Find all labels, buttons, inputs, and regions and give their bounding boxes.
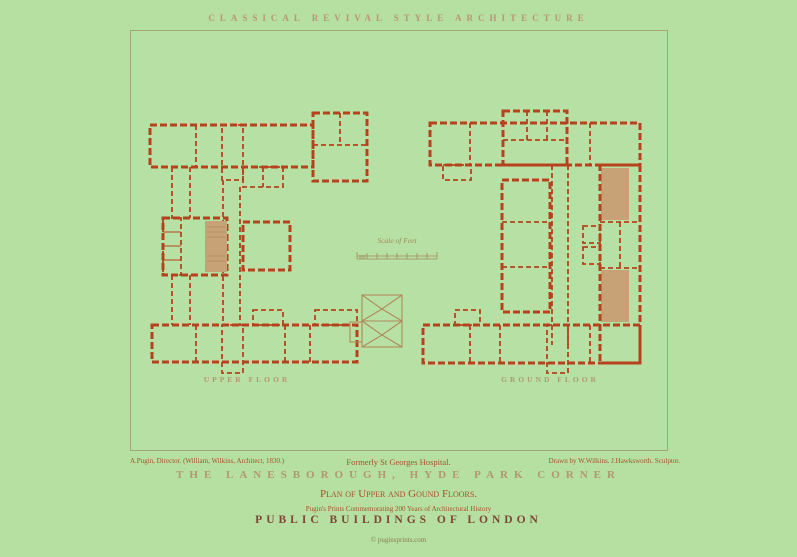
credit-engraver: Drawn by W.Wilkins. J.Hawksworth. Sculpt… [549,457,680,465]
poster: CLASSICAL REVIVAL STYLE ARCHITECTURE [0,0,797,557]
portico-shade-bottom [601,270,629,322]
portico-shade-top [601,168,629,220]
scale-of-feet-label: Scale of Feet [353,236,441,245]
series-note: Pugin's Prints Commemorating 200 Years o… [0,505,797,513]
copyright-text: © puginsprints.com [0,536,797,544]
poster-title: THE LANESBOROUGH, HYDE PARK CORNER [0,469,797,481]
ground-floor-label: GROUND FLOOR [480,375,620,384]
stair-hall-shade [205,221,227,272]
scale-bar [357,252,437,259]
upper-floor-plan [150,113,367,373]
collection-title: PUBLIC BUILDINGS OF LONDON [0,514,797,526]
ground-floor-plan [423,111,640,373]
poster-subtitle: Plan of Upper and Gound Floors. [0,488,797,500]
upper-floor-label: UPPER FLOOR [177,375,317,384]
